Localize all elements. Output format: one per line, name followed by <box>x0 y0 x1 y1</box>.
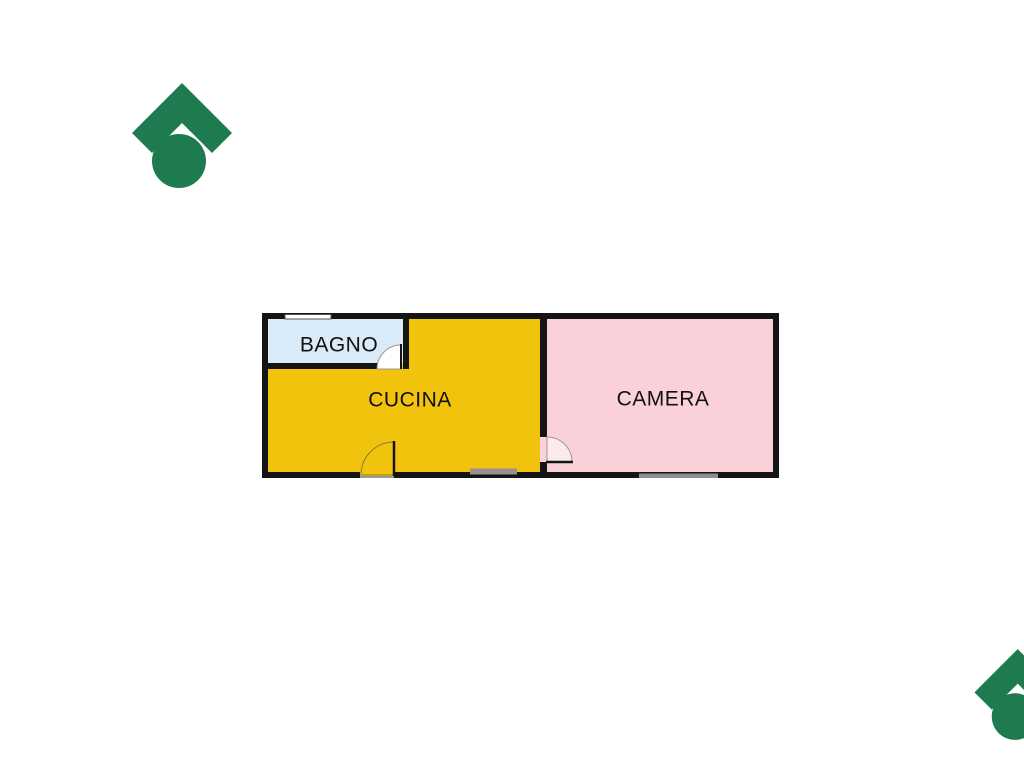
agency-logo-icon <box>971 649 1024 740</box>
camera-bottom-window <box>639 474 718 479</box>
bagno-top-window <box>285 315 331 320</box>
floorplan: BAGNO CUCINA CAMERA <box>262 313 779 478</box>
divider-wall-upper <box>540 319 547 437</box>
cucina-room-label: CUCINA <box>368 390 452 411</box>
divider-wall-lower <box>540 462 547 472</box>
bagno-right-wall <box>403 319 409 369</box>
agency-logo-icon <box>128 83 232 188</box>
camera-room-label: CAMERA <box>617 389 710 410</box>
cucina-bottom-window <box>470 469 517 475</box>
cucina-door-threshold <box>360 476 394 478</box>
logo-circle-icon <box>152 134 206 188</box>
bagno-room-label: BAGNO <box>300 335 378 356</box>
page-background: BAGNO CUCINA CAMERA <box>0 0 1024 768</box>
bagno-bottom-wall <box>268 363 381 369</box>
